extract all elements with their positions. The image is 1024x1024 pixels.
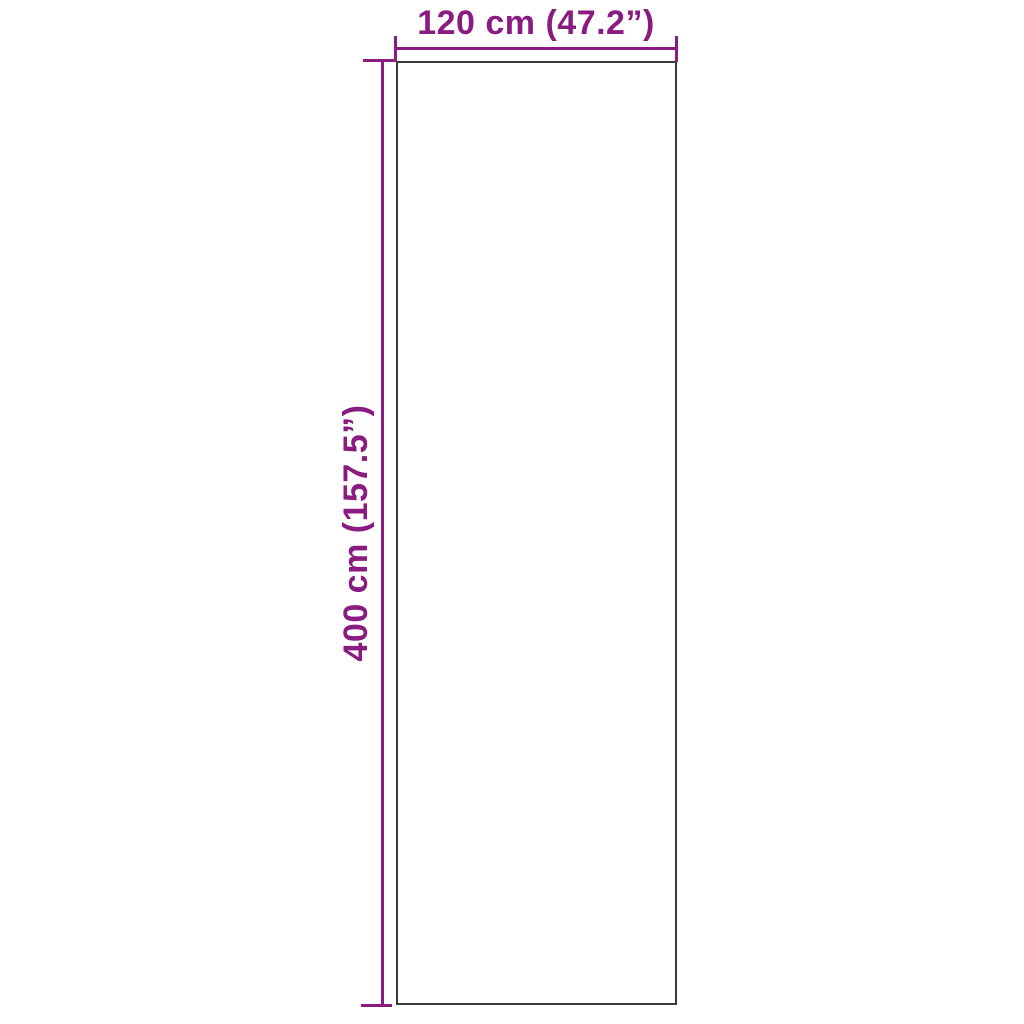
height-dimension-label: 400 cm (157.5”) [334,59,378,1007]
width-dimension-label: 120 cm (47.2”) [374,2,698,44]
height-dimension-line [381,59,384,1007]
product-dimension-diagram: 120 cm (47.2”) 400 cm (157.5”) [0,0,1024,1024]
width-dimension-line [394,47,678,50]
product-outline [396,61,677,1005]
